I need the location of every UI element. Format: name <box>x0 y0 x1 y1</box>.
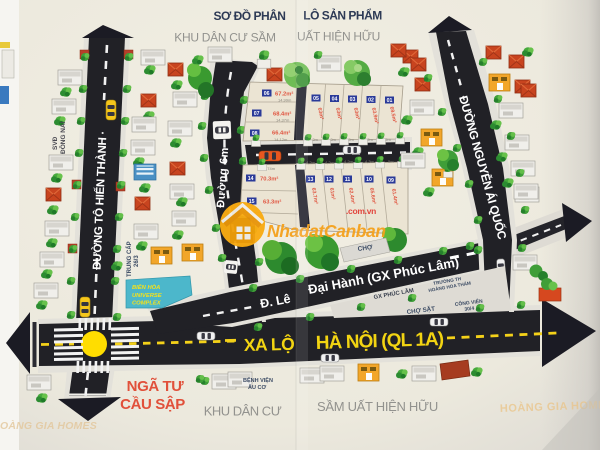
svg-text:03: 03 <box>350 97 356 103</box>
svg-text:11: 11 <box>345 177 351 183</box>
svg-text:01: 01 <box>387 98 393 104</box>
svg-text:13: 13 <box>308 177 314 183</box>
svg-text:67.2m²: 67.2m² <box>275 91 293 98</box>
svg-text:30/4: 30/4 <box>464 306 475 313</box>
svg-text:NGÃ TƯ: NGÃ TƯ <box>127 377 185 395</box>
svg-text:SƠ ĐỒ PHÂN: SƠ ĐỒ PHÂN <box>214 8 286 23</box>
svg-text:04: 04 <box>332 97 338 103</box>
svg-text:BỆNH VIỆN: BỆNH VIỆN <box>243 376 273 384</box>
svg-text:12: 12 <box>326 177 332 183</box>
svg-text:09: 09 <box>388 178 394 184</box>
svg-text:NhadatCanban: NhadatCanban <box>267 221 386 241</box>
svg-text:SVĐ: SVĐ <box>52 136 59 150</box>
svg-text:4,3m: 4,3m <box>365 159 375 164</box>
svg-text:63.3m²: 63.3m² <box>263 199 281 206</box>
svg-text:14,99m: 14,99m <box>278 98 292 103</box>
svg-text:4,2m: 4,2m <box>344 159 354 164</box>
svg-text:TRUNG CẤP: TRUNG CẤP <box>126 241 133 277</box>
svg-text:KHU DÂN CƯ: KHU DÂN CƯ <box>204 404 282 419</box>
svg-text:HÀ NỘI (QL 1A): HÀ NỘI (QL 1A) <box>315 328 444 354</box>
svg-text:OÀNG GIA HOMES: OÀNG GIA HOMES <box>0 419 97 432</box>
svg-text:UNIVERSE: UNIVERSE <box>132 293 163 299</box>
svg-text:UẤT HIỆN HỮU: UẤT HIỆN HỮU <box>297 29 380 44</box>
svg-text:5m: 5m <box>388 159 394 164</box>
svg-text:LÔ SẢN PHẨM: LÔ SẢN PHẨM <box>303 8 382 23</box>
svg-text:ÂU CƠ: ÂU CƠ <box>248 384 266 391</box>
svg-text:70.3m²: 70.3m² <box>260 176 278 183</box>
svg-text:4,2m: 4,2m <box>325 160 335 165</box>
svg-text:14,12m: 14,12m <box>274 137 288 142</box>
svg-text:05: 05 <box>313 96 319 102</box>
svg-text:KHU DÂN CƯ SẦM: KHU DÂN CƯ SẦM <box>174 30 276 45</box>
svg-text:02: 02 <box>368 98 374 104</box>
svg-text:.com.vn: .com.vn <box>346 206 376 216</box>
svg-text:06: 06 <box>264 91 270 97</box>
svg-text:BIÊN HÒA: BIÊN HÒA <box>132 283 160 291</box>
svg-text:SẦM UẤT HIỆN HỮU: SẦM UẤT HIỆN HỮU <box>317 399 438 414</box>
svg-text:14: 14 <box>248 176 254 182</box>
svg-text:07: 07 <box>254 111 260 117</box>
svg-text:26/3: 26/3 <box>134 255 140 267</box>
svg-text:10: 10 <box>366 177 372 183</box>
svg-text:COMPLEX: COMPLEX <box>132 301 162 307</box>
svg-text:CẦU SẬP: CẦU SẬP <box>120 395 185 413</box>
svg-text:66.4m²: 66.4m² <box>272 130 290 137</box>
svg-text:68.4m²: 68.4m² <box>273 111 291 118</box>
svg-text:XA LỘ: XA LỘ <box>244 333 295 355</box>
svg-text:14,37m: 14,37m <box>276 118 290 123</box>
